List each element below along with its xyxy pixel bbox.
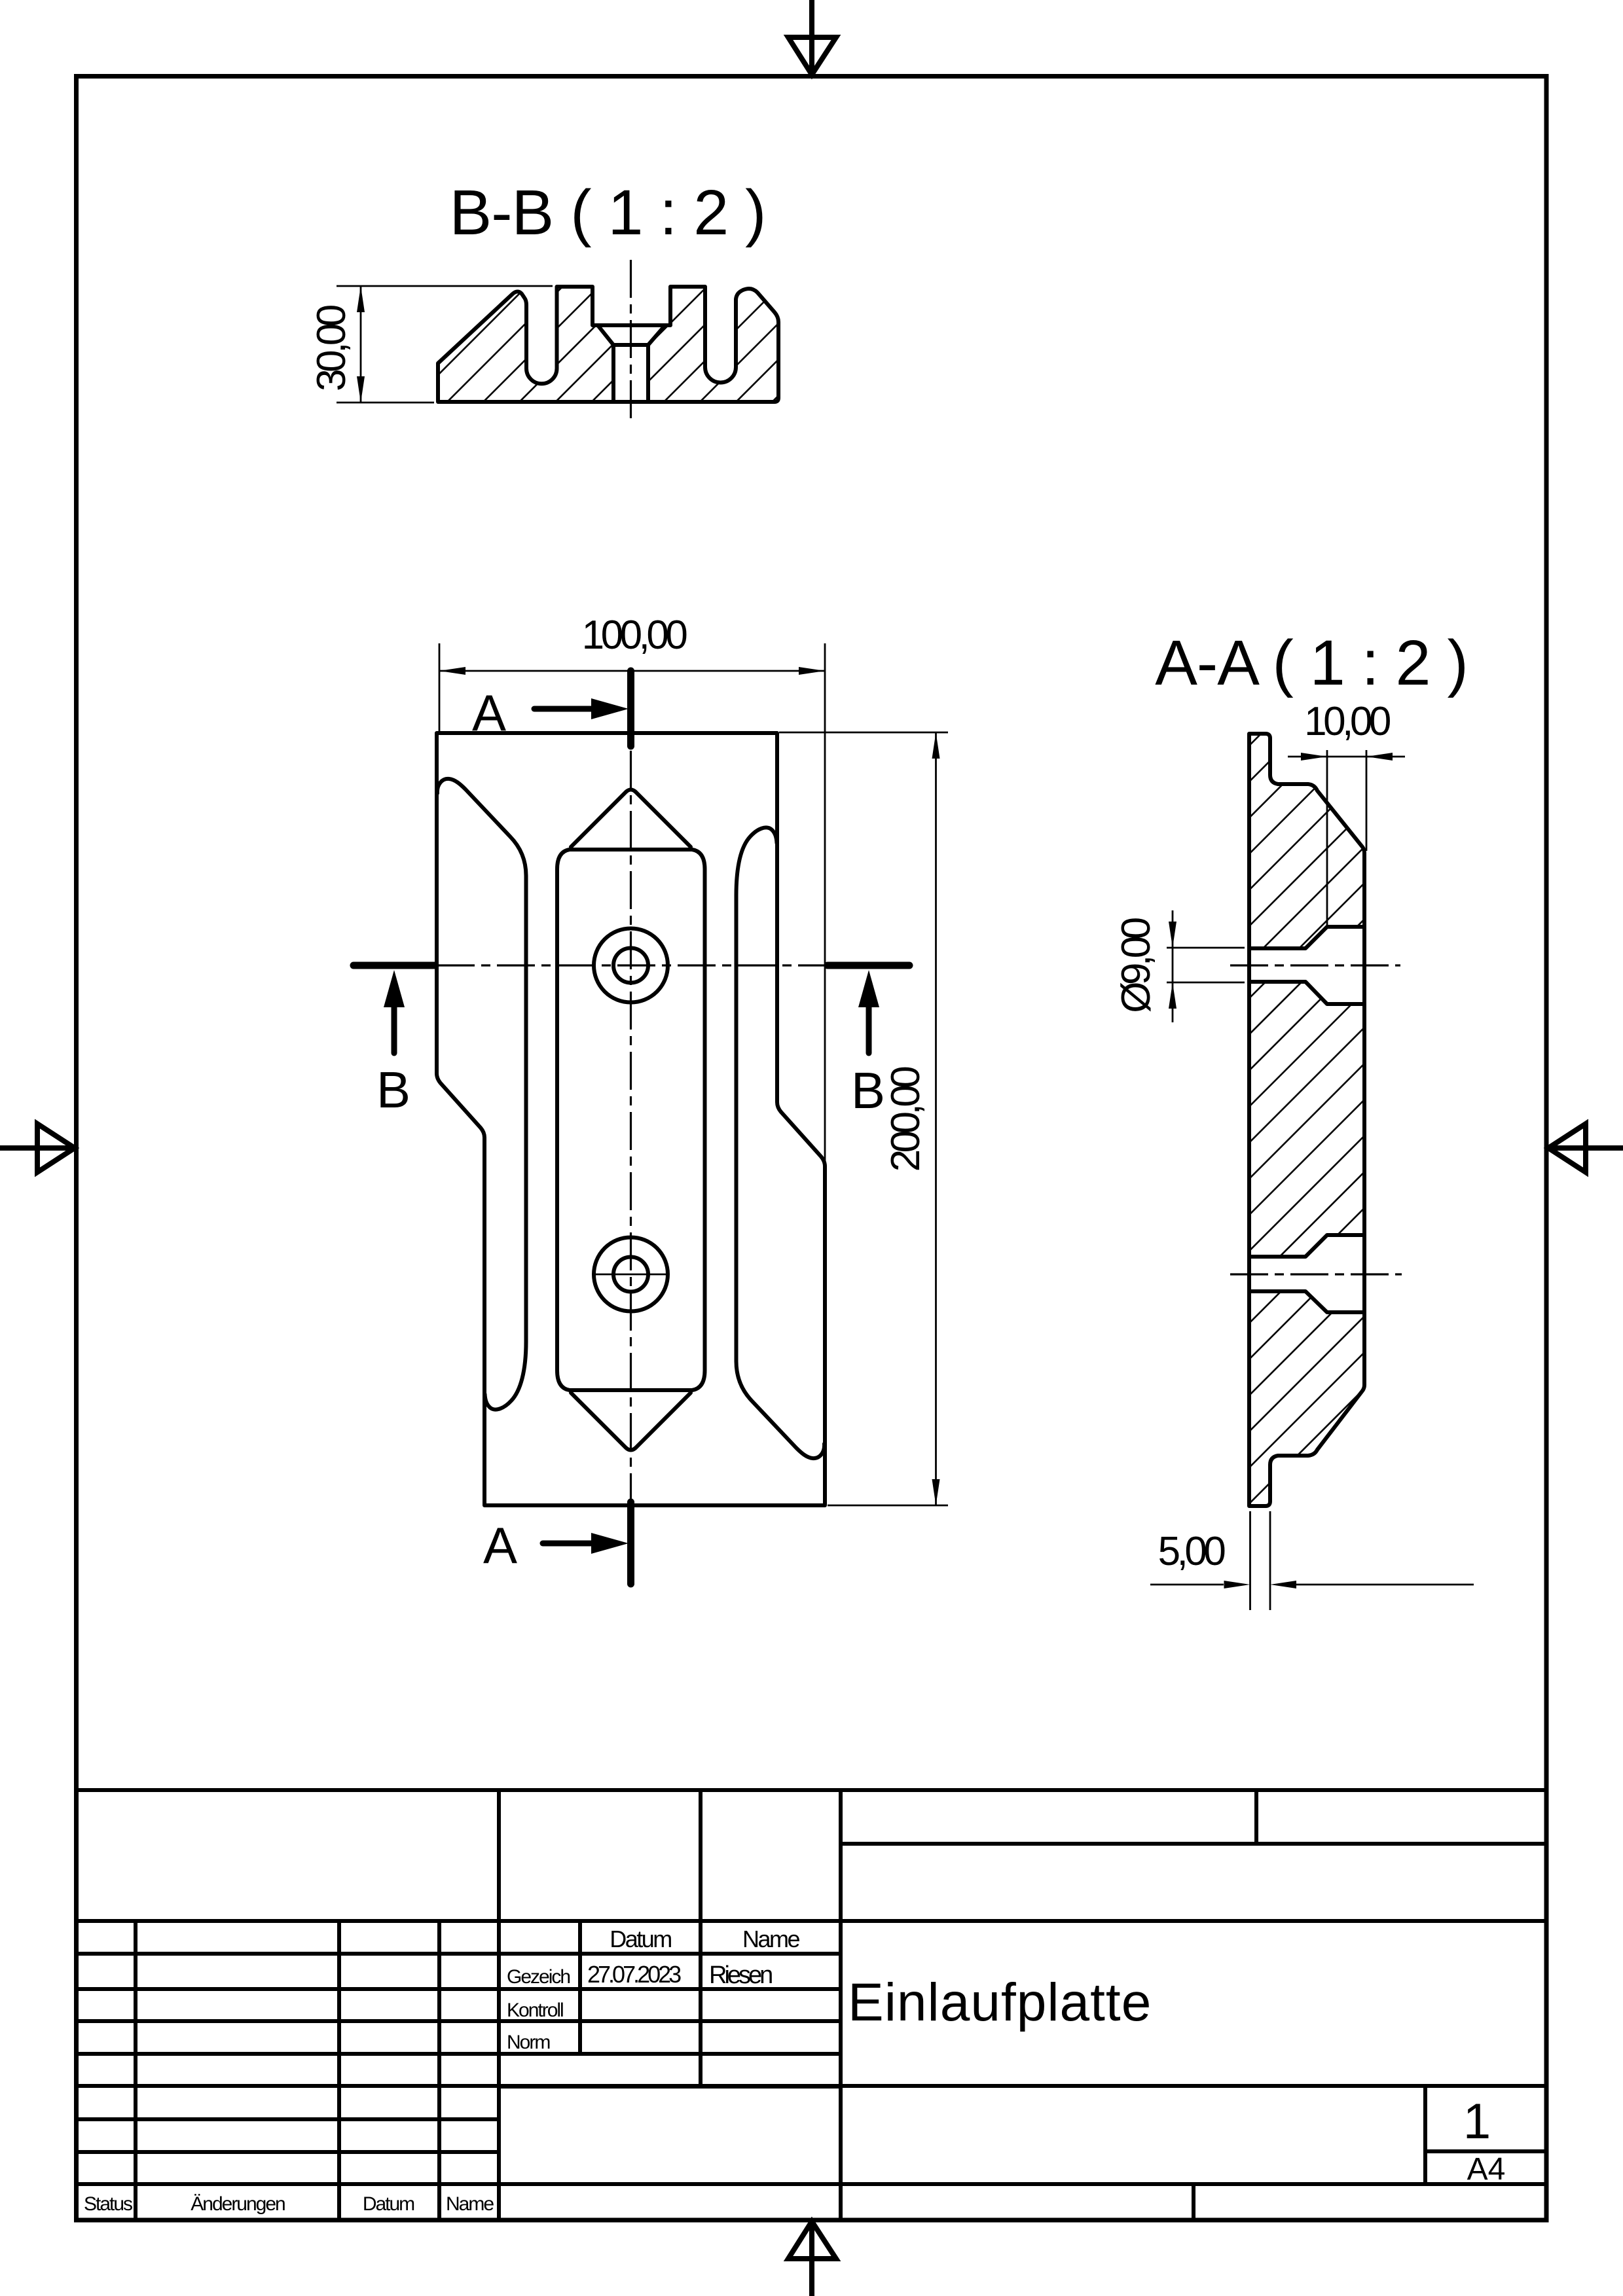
svg-text:Datum: Datum <box>610 1926 671 1952</box>
svg-text:Ø9,00: Ø9,00 <box>1114 918 1159 1013</box>
svg-text:B: B <box>376 1061 410 1119</box>
svg-text:Änderungen: Änderungen <box>191 2193 285 2215</box>
svg-text:A: A <box>472 684 506 742</box>
svg-text:Einlaufplatte: Einlaufplatte <box>848 1973 1152 2032</box>
svg-text:1: 1 <box>1463 2094 1491 2149</box>
svg-text:30,00: 30,00 <box>309 305 354 391</box>
svg-text:Gezeich: Gezeich <box>507 1966 570 1988</box>
svg-text:Status: Status <box>84 2193 132 2215</box>
svg-text:200,00: 200,00 <box>883 1067 928 1172</box>
svg-text:Name: Name <box>742 1926 800 1952</box>
svg-text:A: A <box>483 1516 517 1574</box>
svg-text:B: B <box>851 1062 885 1119</box>
svg-text:A4: A4 <box>1467 2152 1506 2187</box>
svg-text:27.07.2023: 27.07.2023 <box>587 1961 681 1988</box>
svg-text:Norm: Norm <box>507 2032 550 2053</box>
svg-text:Name: Name <box>446 2193 494 2215</box>
svg-text:5,00: 5,00 <box>1158 1529 1226 1574</box>
svg-text:A-A ( 1 : 2 ): A-A ( 1 : 2 ) <box>1155 627 1468 698</box>
svg-text:B-B ( 1 : 2 ): B-B ( 1 : 2 ) <box>450 177 766 248</box>
svg-text:Kontroll: Kontroll <box>507 2000 563 2021</box>
svg-text:100,00: 100,00 <box>582 613 687 658</box>
svg-text:Riesen: Riesen <box>709 1962 772 1989</box>
svg-text:10,00: 10,00 <box>1304 699 1391 744</box>
svg-text:Datum: Datum <box>363 2193 414 2215</box>
